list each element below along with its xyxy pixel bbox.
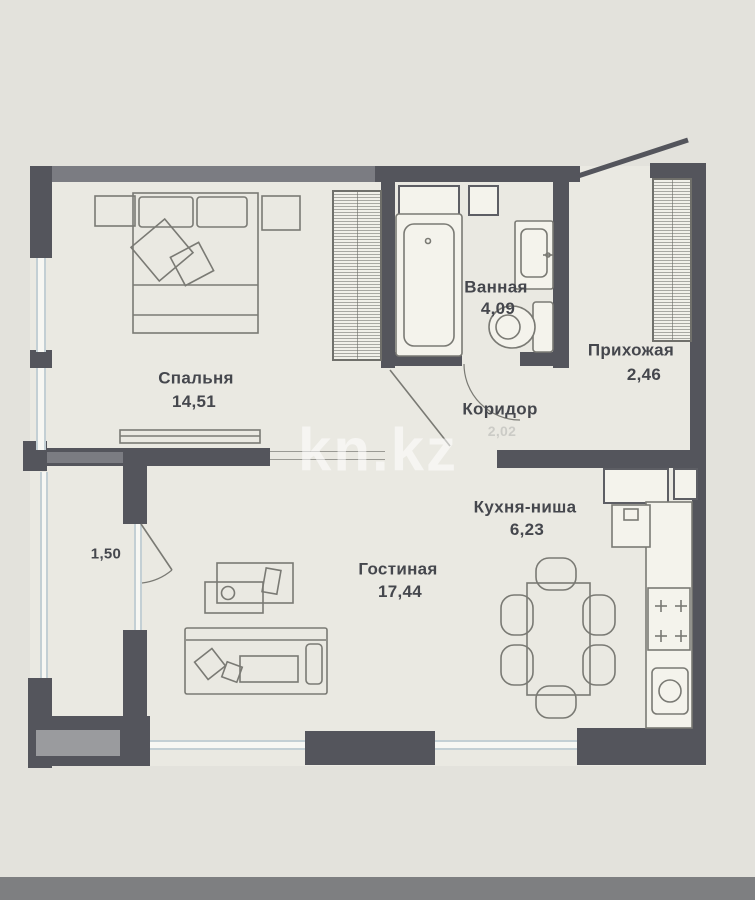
bathroom-area: 4,09: [481, 299, 515, 319]
living-label: Гостиная: [358, 559, 437, 582]
bathtub-symbol: [396, 214, 462, 356]
bottom-bar: [0, 877, 755, 900]
kitchen-area: 6,23: [510, 520, 544, 540]
bedroom-label: Спальня: [158, 368, 234, 391]
bedroom-area: 14,51: [172, 392, 216, 412]
radiator-symbol: [120, 430, 260, 443]
corridor-area: 2,02: [488, 423, 516, 439]
kitchen-counter-symbol: [612, 502, 692, 728]
bed-symbol: [95, 193, 300, 333]
living-area: 17,44: [378, 582, 422, 602]
watermark-text: kn.kz: [298, 416, 458, 485]
corridor-label: Коридор: [462, 399, 537, 422]
desk-symbol: [205, 563, 293, 613]
balcony-area: 1,50: [91, 546, 121, 563]
floorplan-canvas: Спальня 14,51 Ванная 4,09 Прихожая 2,46 …: [0, 0, 755, 900]
kitchen-label: Кухня-ниша: [474, 497, 577, 520]
door-balcony: [141, 524, 172, 583]
bathroom-label: Ванная: [464, 277, 527, 300]
sofa-symbol: [185, 628, 327, 694]
dining-table-symbol: [501, 558, 615, 718]
door-entrance: [578, 140, 688, 176]
hallway-label: Прихожая: [588, 340, 674, 363]
hallway-area: 2,46: [627, 365, 661, 385]
